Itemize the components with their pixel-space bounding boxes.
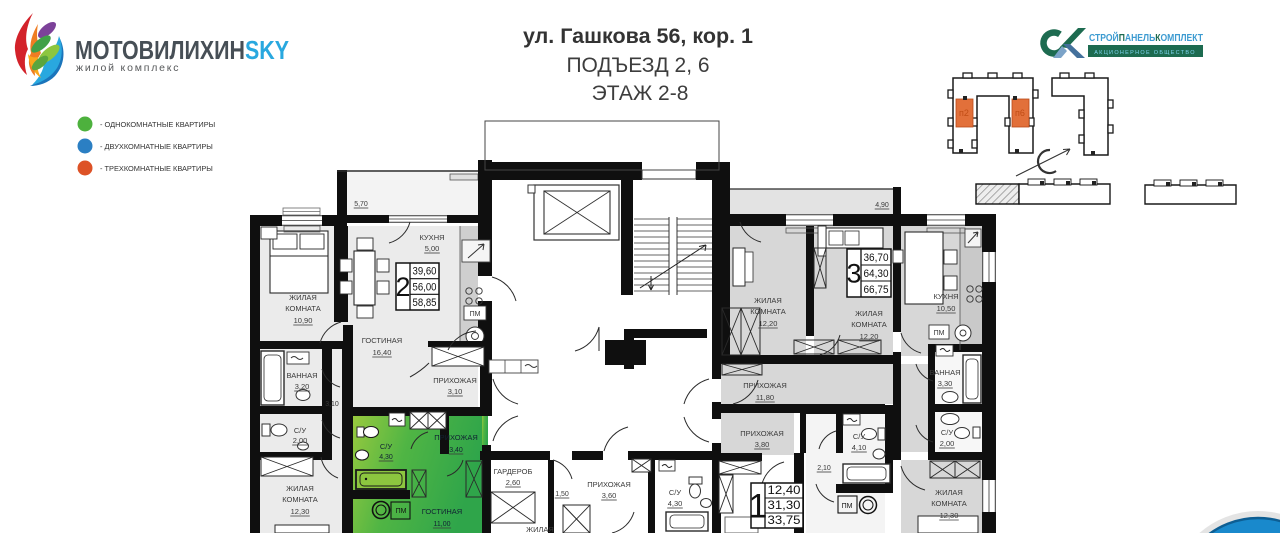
svg-text:МОТОВИЛИХИНSKY: МОТОВИЛИХИНSKY xyxy=(75,37,289,65)
svg-text:16,40: 16,40 xyxy=(373,348,392,357)
svg-text:С/У: С/У xyxy=(941,428,954,437)
svg-text:С/У: С/У xyxy=(853,432,866,441)
svg-text:2,00: 2,00 xyxy=(293,436,308,445)
svg-text:ГОСТИНАЯ: ГОСТИНАЯ xyxy=(422,507,462,516)
svg-text:12,20: 12,20 xyxy=(860,332,879,341)
svg-text:ЖИЛАЯ: ЖИЛАЯ xyxy=(855,309,883,318)
svg-text:ПМ: ПМ xyxy=(842,503,853,510)
svg-text:58,85: 58,85 xyxy=(413,297,437,309)
svg-text:жилой комплекс: жилой комплекс xyxy=(76,62,180,74)
svg-text:ВАННАЯ: ВАННАЯ xyxy=(286,371,317,380)
svg-text:п6: п6 xyxy=(1015,108,1025,118)
svg-text:12,20: 12,20 xyxy=(759,319,778,328)
svg-text:С/У: С/У xyxy=(380,442,393,451)
svg-text:10,50: 10,50 xyxy=(937,304,956,313)
svg-text:ВАННАЯ: ВАННАЯ xyxy=(929,368,960,377)
svg-text:п2: п2 xyxy=(959,108,969,118)
svg-text:3,60: 3,60 xyxy=(602,491,617,500)
svg-text:С/У: С/У xyxy=(669,488,682,497)
svg-text:ПРИХОЖАЯ: ПРИХОЖАЯ xyxy=(587,480,631,489)
svg-text:3,10: 3,10 xyxy=(325,401,339,408)
svg-text:КОМНАТА: КОМНАТА xyxy=(851,320,887,329)
svg-text:2,10: 2,10 xyxy=(817,465,831,472)
svg-text:ЖИЛАЯ: ЖИЛАЯ xyxy=(289,293,317,302)
svg-text:12,40: 12,40 xyxy=(768,483,801,497)
svg-text:ул. Гашкова 56, кор. 1: ул. Гашкова 56, кор. 1 xyxy=(523,24,753,48)
svg-text:5,00: 5,00 xyxy=(425,244,440,253)
svg-text:3,80: 3,80 xyxy=(755,440,770,449)
svg-text:12,30: 12,30 xyxy=(291,507,310,516)
svg-text:ПРИХОЖАЯ: ПРИХОЖАЯ xyxy=(434,433,478,442)
svg-text:- ТРЕХКОМНАТНЫЕ КВАРТИРЫ: - ТРЕХКОМНАТНЫЕ КВАРТИРЫ xyxy=(100,164,213,173)
svg-text:ПМ: ПМ xyxy=(396,508,407,515)
svg-text:11,00: 11,00 xyxy=(434,521,451,528)
svg-text:4,90: 4,90 xyxy=(875,202,889,209)
svg-text:С/У: С/У xyxy=(294,426,307,435)
svg-text:КОМНАТА: КОМНАТА xyxy=(285,304,321,313)
svg-text:ПМ: ПМ xyxy=(934,330,945,337)
svg-text:56,00: 56,00 xyxy=(413,281,437,293)
svg-text:КОМНАТА: КОМНАТА xyxy=(931,499,967,508)
svg-text:КОМНАТА: КОМНАТА xyxy=(282,495,318,504)
svg-text:11,80: 11,80 xyxy=(756,393,774,402)
svg-text:5,70: 5,70 xyxy=(354,201,368,208)
svg-text:64,30: 64,30 xyxy=(864,268,889,280)
svg-text:КУХНЯ: КУХНЯ xyxy=(933,292,958,301)
svg-text:1,50: 1,50 xyxy=(555,491,569,498)
svg-text:3,40: 3,40 xyxy=(449,447,463,454)
svg-text:4,30: 4,30 xyxy=(668,499,683,508)
svg-text:2: 2 xyxy=(395,272,410,302)
svg-text:ГАРДЕРОБ: ГАРДЕРОБ xyxy=(494,467,533,476)
svg-text:2,60: 2,60 xyxy=(506,478,521,487)
svg-text:ПРИХОЖАЯ: ПРИХОЖАЯ xyxy=(740,429,784,438)
svg-text:10,90: 10,90 xyxy=(294,316,313,325)
svg-text:ПМ: ПМ xyxy=(470,311,481,318)
svg-text:ЖИЛАЯ: ЖИЛАЯ xyxy=(754,296,782,305)
svg-text:3: 3 xyxy=(846,259,861,289)
svg-text:1: 1 xyxy=(749,488,768,526)
svg-text:КУХНЯ: КУХНЯ xyxy=(419,233,444,242)
svg-text:ЭТАЖ 2-8: ЭТАЖ 2-8 xyxy=(592,82,689,105)
svg-text:12,30: 12,30 xyxy=(940,511,959,520)
svg-text:66,75: 66,75 xyxy=(864,284,889,296)
svg-text:3,20: 3,20 xyxy=(295,382,310,391)
svg-text:ПРИХОЖАЯ: ПРИХОЖАЯ xyxy=(433,376,477,385)
svg-text:КОМНАТА: КОМНАТА xyxy=(750,307,786,316)
svg-text:ГОСТИНАЯ: ГОСТИНАЯ xyxy=(362,336,402,345)
svg-text:4,10: 4,10 xyxy=(852,443,867,452)
svg-text:3,10: 3,10 xyxy=(448,387,463,396)
svg-text:2,00: 2,00 xyxy=(940,439,955,448)
svg-text:ПРИХОЖАЯ: ПРИХОЖАЯ xyxy=(743,381,787,390)
svg-text:ПОДЪЕЗД 2, 6: ПОДЪЕЗД 2, 6 xyxy=(566,54,709,77)
svg-text:36,70: 36,70 xyxy=(864,252,889,264)
svg-text:ЖИЛАЯ: ЖИЛАЯ xyxy=(286,484,314,493)
svg-text:4,30: 4,30 xyxy=(379,454,393,461)
svg-text:39,60: 39,60 xyxy=(413,266,437,278)
svg-text:3,30: 3,30 xyxy=(938,379,953,388)
svg-text:- ДВУХКОМНАТНЫЕ КВАРТИРЫ: - ДВУХКОМНАТНЫЕ КВАРТИРЫ xyxy=(100,142,213,151)
svg-text:- ОДНОКОМНАТНЫЕ КВАРТИРЫ: - ОДНОКОМНАТНЫЕ КВАРТИРЫ xyxy=(100,120,215,129)
svg-text:33,75: 33,75 xyxy=(768,513,801,527)
svg-text:ЖИЛАЯ: ЖИЛАЯ xyxy=(935,488,963,497)
svg-text:ЖИЛАЯ: ЖИЛАЯ xyxy=(526,525,554,533)
svg-text:АКЦИОНЕРНОЕ ОБЩЕСТВО: АКЦИОНЕРНОЕ ОБЩЕСТВО xyxy=(1094,50,1196,56)
svg-text:СТРОЙПАНЕЛЬКОМПЛЕКТ: СТРОЙПАНЕЛЬКОМПЛЕКТ xyxy=(1089,31,1204,44)
svg-text:31,30: 31,30 xyxy=(768,498,801,512)
